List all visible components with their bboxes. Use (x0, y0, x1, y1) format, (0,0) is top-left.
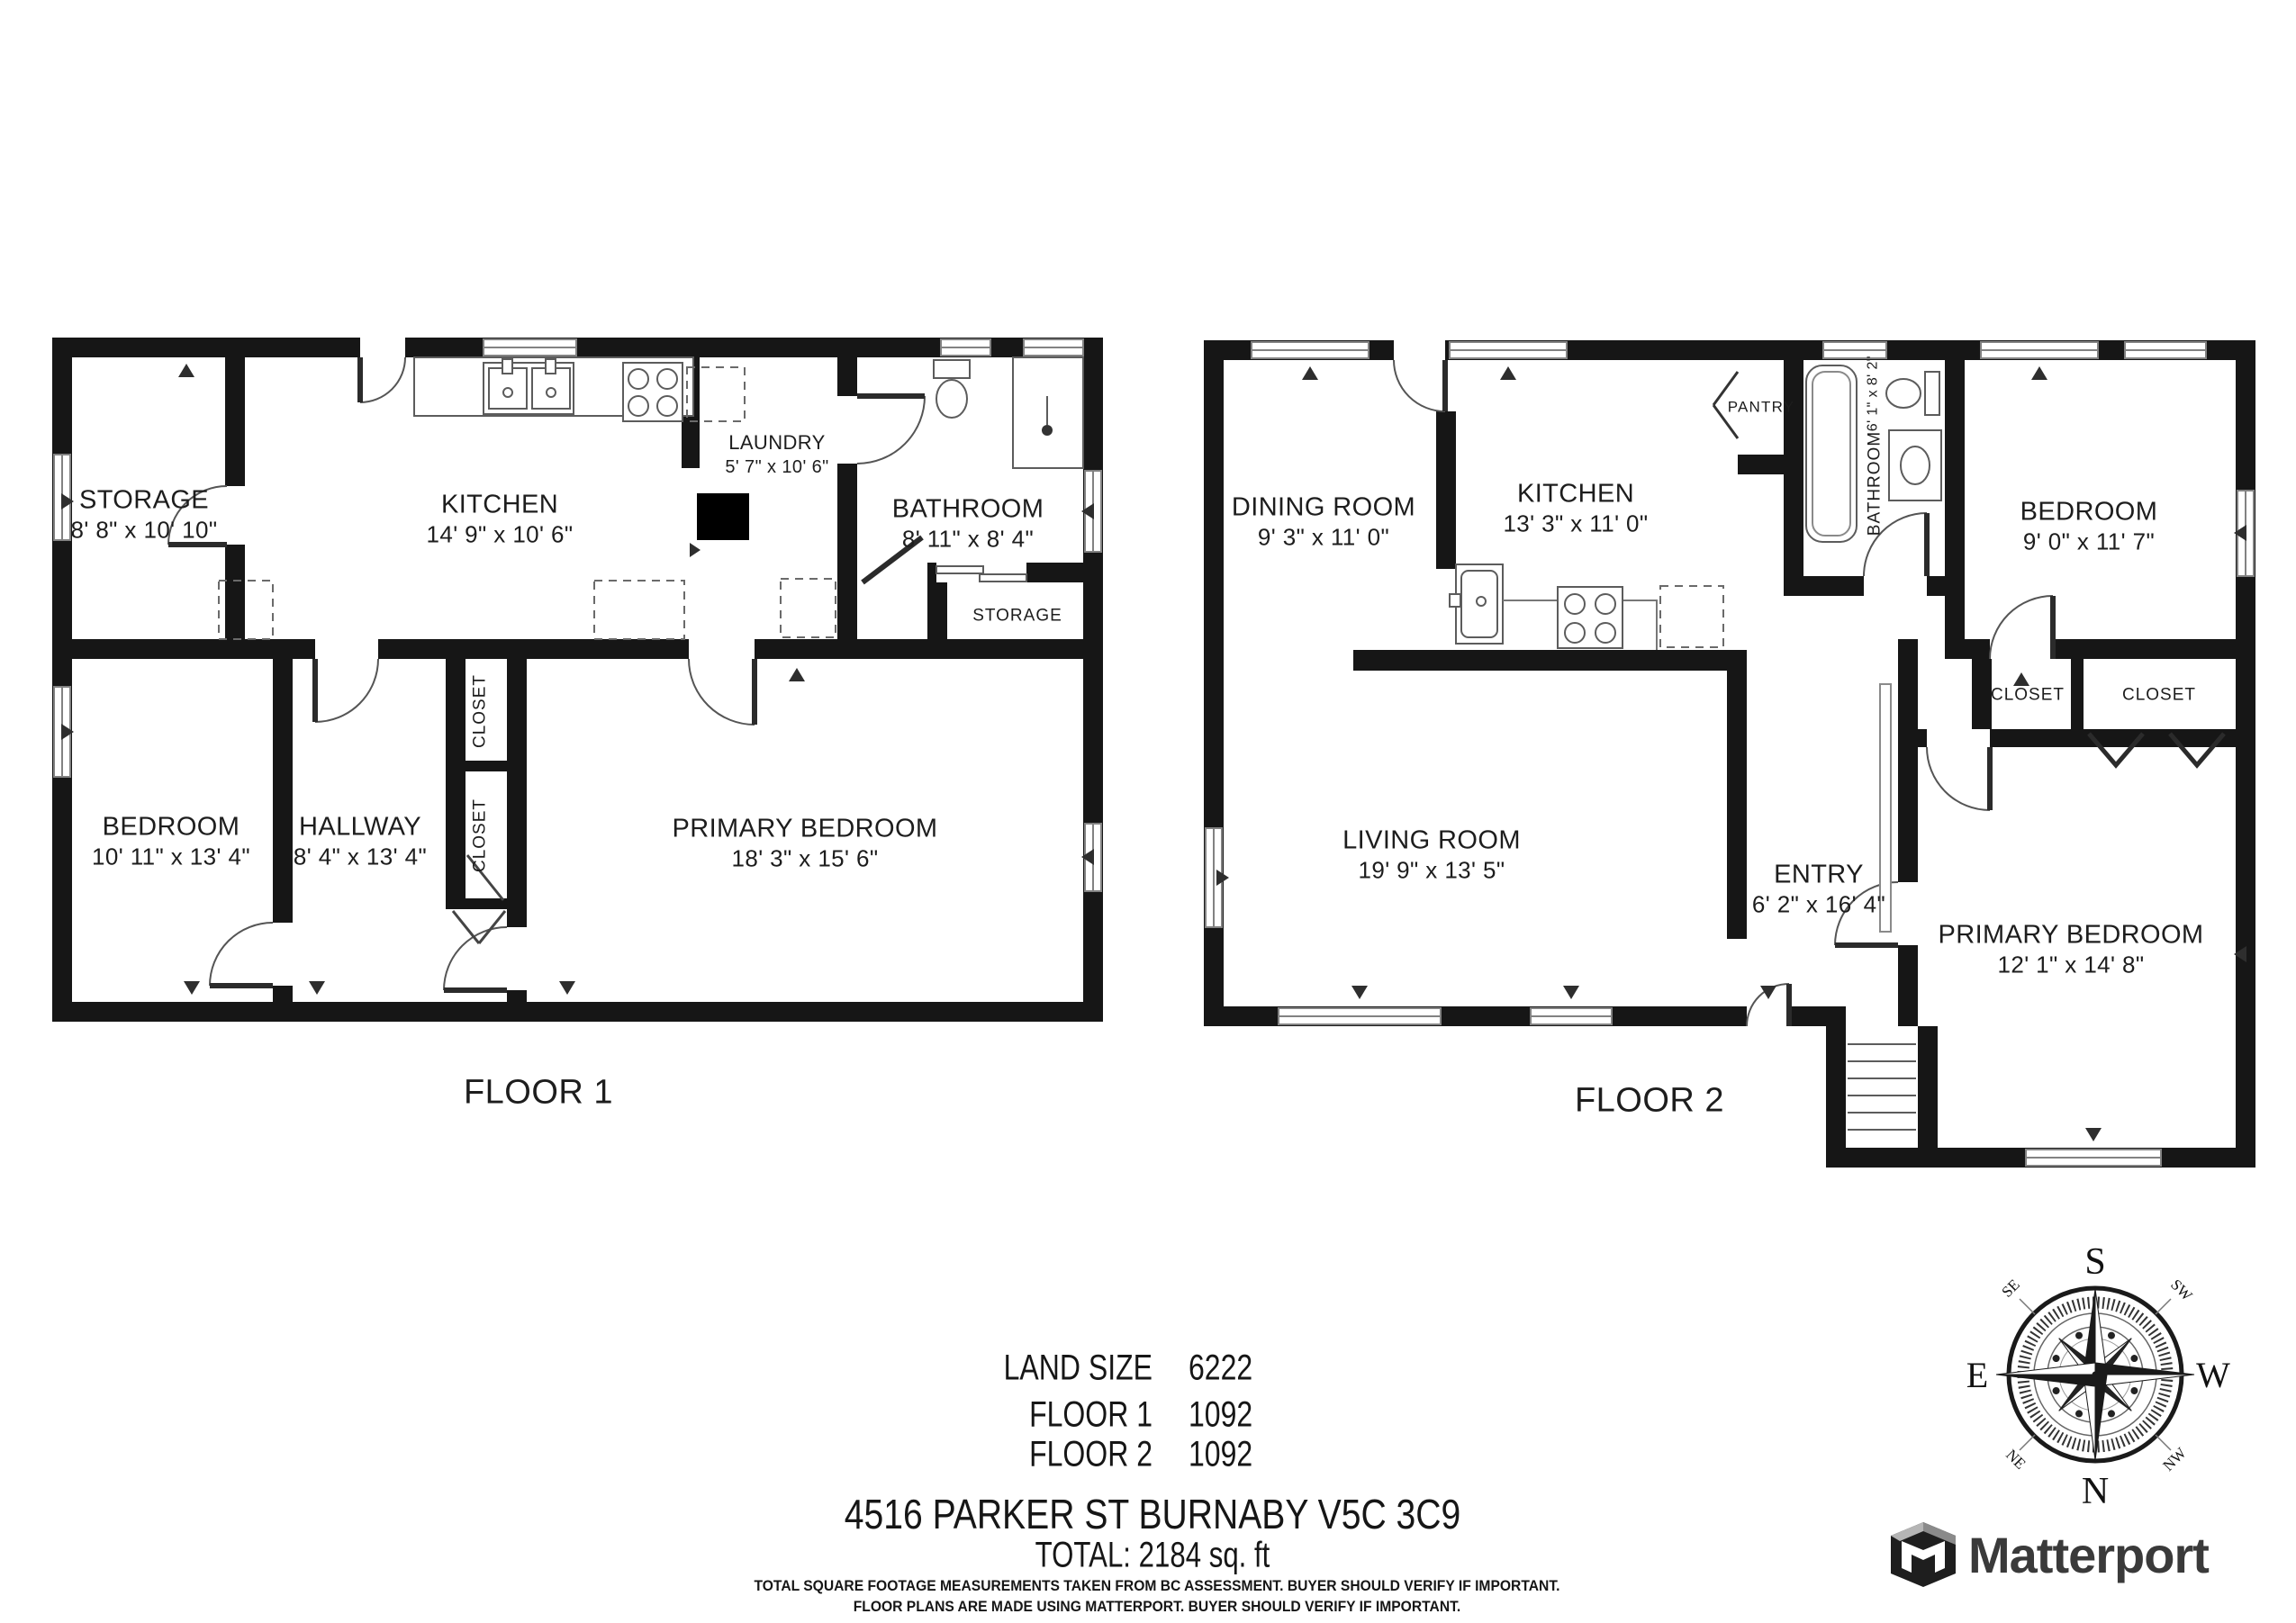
room-label-dining-room: DINING ROOM 9' 3" x 11' 0" (1232, 493, 1415, 552)
room-label-kitchen-f2: KITCHEN 13' 3" x 11' 0" (1503, 480, 1648, 538)
compass-rose: S N W E SE SW NE NW (1966, 1241, 2230, 1512)
room-label-primary-bedroom-f2: PRIMARY BEDROOM 12' 1" x 14' 8" (1939, 921, 2204, 979)
compass-sw-label: SW (2167, 1276, 2196, 1304)
compass-se-label: SE (1998, 1276, 2022, 1300)
room-label-kitchen-f1: KITCHEN 14' 9" x 10' 6" (426, 491, 573, 549)
room-label-bedroom-f1: BEDROOM 10' 11" x 13' 4" (92, 813, 250, 871)
floor1-markers (61, 364, 1094, 995)
room-label-bedroom-f2: BEDROOM 9' 0" x 11' 7" (2020, 498, 2158, 556)
appliance-dashed-box (1660, 586, 1723, 647)
property-address: 4516 PARKER ST BURNABY V5C 3C9 (845, 1490, 1461, 1538)
toilet-icon (934, 360, 970, 378)
matterport-wordmark: Matterport (1968, 1526, 2209, 1584)
sliding-door (980, 574, 1026, 582)
compass-south-label: S (2084, 1241, 2105, 1283)
room-label-bathroom-f1: BATHROOM 8' 11" x 8' 4" (892, 495, 1044, 554)
stairs-icon (1848, 1044, 1916, 1130)
matterport-logo-icon (1891, 1522, 1956, 1587)
compass-east-label: E (1966, 1355, 1988, 1395)
room-label-closet2-f1: CLOSET (470, 798, 489, 872)
compass-north-label: N (2082, 1471, 2109, 1512)
floor2-walls (1204, 340, 2255, 1168)
room-label-closet1-f1: CLOSET (470, 674, 489, 748)
floor1-area-label: FLOOR 1 (1029, 1395, 1153, 1436)
room-label-pantry: PANTRY (1728, 398, 1795, 415)
chimney-icon (697, 493, 749, 540)
land-size-label: LAND SIZE (1004, 1348, 1153, 1389)
room-label-living-room: LIVING ROOM 19' 9" x 13' 5" (1342, 826, 1521, 885)
compass-ne-label: NE (2002, 1446, 2029, 1472)
floor-plan-page: S N W E SE SW NE NW STORAGE 8' 8" x 10' … (0, 0, 2296, 1623)
room-label-laundry: LAUNDRY 5' 7" x 10' 6" (725, 432, 828, 477)
floor1-title: FLOOR 1 (464, 1074, 613, 1113)
room-label-closet2-f2: CLOSET (2122, 685, 2196, 704)
sliding-door (936, 566, 983, 573)
room-label-storage-f1: STORAGE 8' 8" x 10' 10" (70, 486, 217, 545)
room-label-storage-closet-f1: STORAGE (972, 606, 1062, 625)
floor2-area-value: 1092 (1189, 1435, 1252, 1475)
floor1-area-value: 1092 (1189, 1395, 1252, 1436)
room-label-bathroom-f2: BATHROOM 6' 1" x 8' 2" (1865, 356, 1884, 536)
compass-west-label: W (2196, 1355, 2230, 1395)
total-area: TOTAL: 2184 sq. ft (1035, 1536, 1270, 1576)
room-label-hallway: HALLWAY 8' 4" x 13' 4" (294, 813, 427, 871)
land-size-value: 6222 (1189, 1348, 1252, 1389)
floor2-door-gaps (1394, 340, 1445, 360)
floor1-walls (52, 338, 1103, 1022)
floor2-title: FLOOR 2 (1575, 1082, 1724, 1121)
disclaimer-line1: TOTAL SQUARE FOOTAGE MEASUREMENTS TAKEN … (754, 1577, 1559, 1595)
disclaimer-line2: FLOOR PLANS ARE MADE USING MATTERPORT. B… (854, 1598, 1461, 1616)
floor2-area-label: FLOOR 2 (1029, 1435, 1153, 1475)
room-label-closet1-f2: CLOSET (1991, 685, 2065, 704)
toilet-icon (1925, 372, 1939, 415)
room-label-primary-bedroom-f1: PRIMARY BEDROOM 18' 3" x 15' 6" (673, 815, 938, 873)
room-label-entry: ENTRY 6' 2" x 16' 4" (1752, 861, 1885, 919)
compass-nw-label: NW (2159, 1444, 2190, 1474)
